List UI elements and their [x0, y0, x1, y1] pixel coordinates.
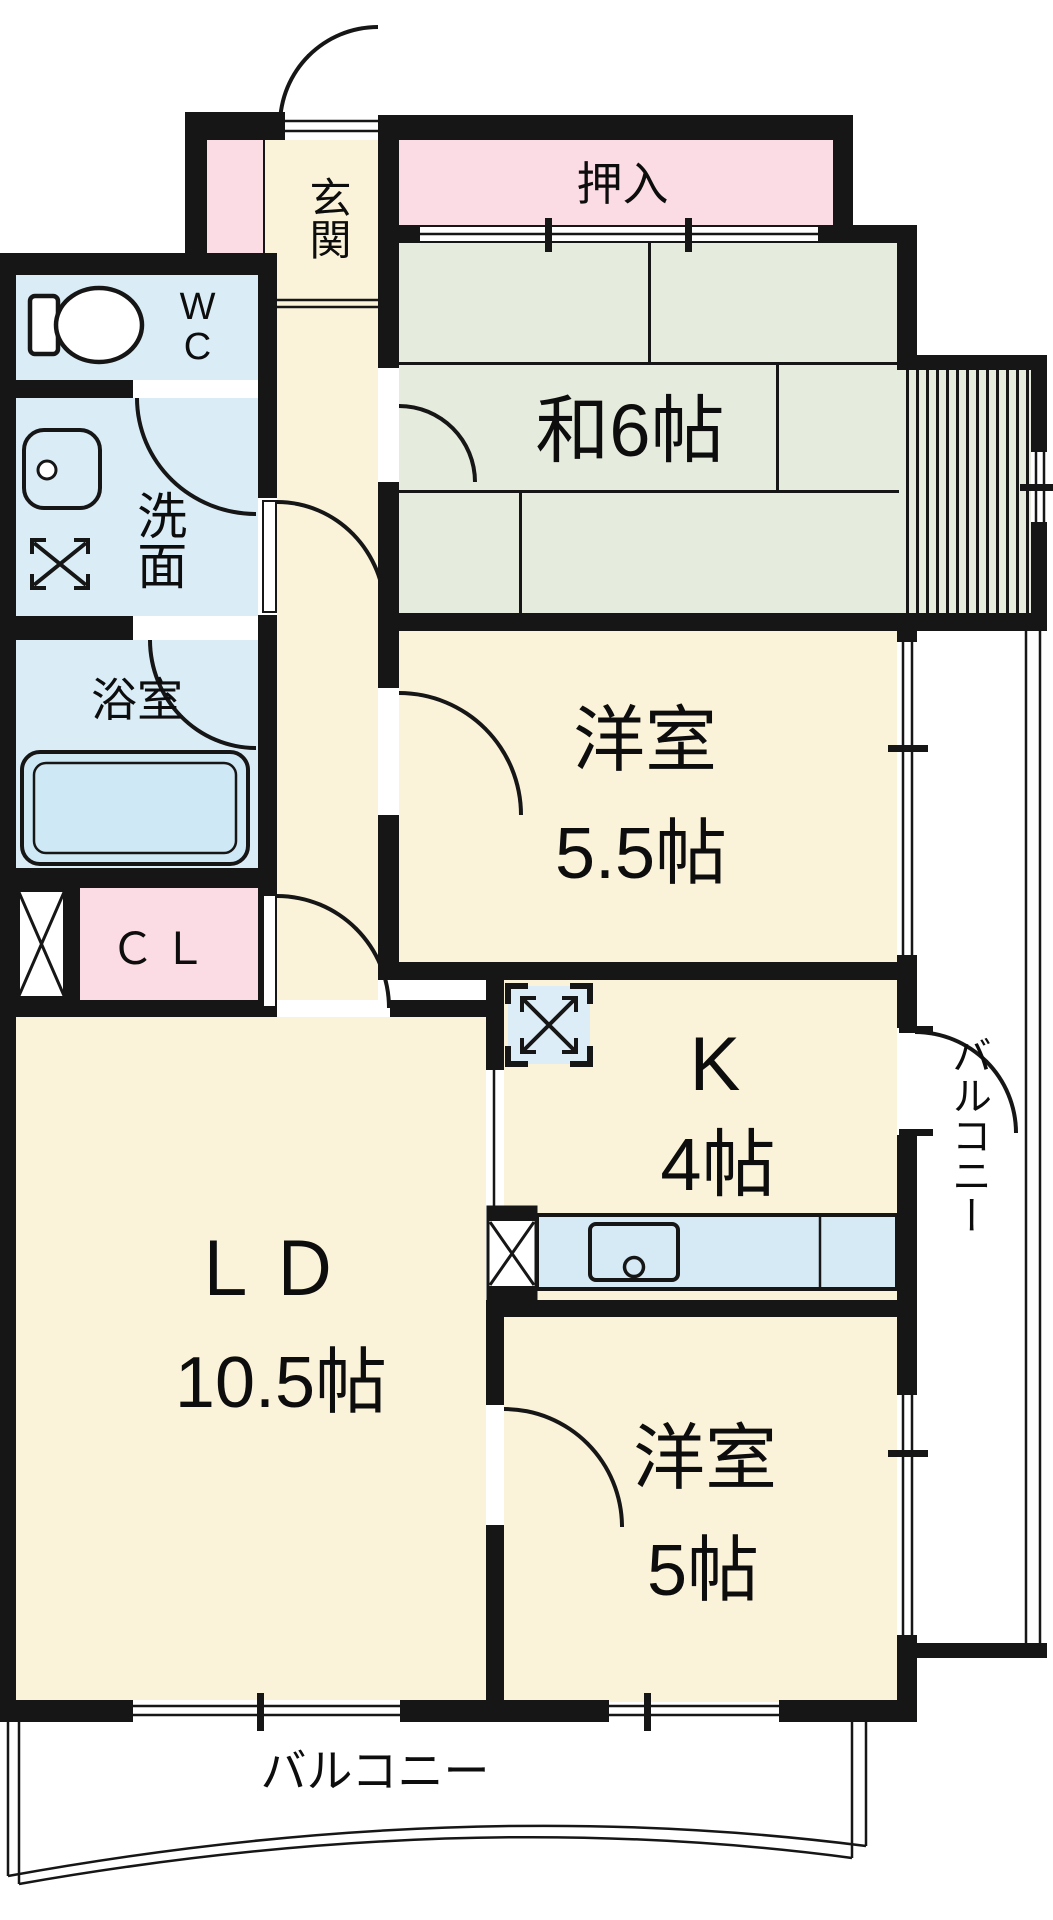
floorplan: 玄関 押入 和6帖 W C 洗面 浴室 ＣＬ 洋室 5.5帖 K 4帖 ＬＤ 1…	[0, 0, 1053, 1920]
wall	[1031, 370, 1047, 452]
wall	[897, 243, 917, 370]
wall	[378, 815, 399, 962]
wall	[378, 962, 917, 980]
wall	[1031, 522, 1047, 613]
label-washitsu: 和6帖	[430, 385, 830, 477]
wall	[897, 631, 917, 642]
tatami-line	[648, 243, 651, 365]
wall	[779, 1700, 917, 1722]
door-gap-western55	[378, 688, 399, 815]
label-yokushitsu: 浴室	[57, 672, 217, 728]
wall	[185, 112, 207, 253]
window-ld-south	[133, 1702, 400, 1720]
window-western5-east	[899, 1395, 915, 1635]
label-living-name: ＬＤ	[150, 1230, 385, 1310]
label-western55-name: 洋室	[480, 700, 810, 784]
label-genkan: 玄関	[298, 158, 356, 278]
door-leaf	[262, 500, 277, 613]
wall	[0, 1000, 277, 1017]
wall	[378, 613, 1047, 631]
label-wc: W C	[160, 278, 235, 378]
label-closet: ＣＬ	[85, 922, 240, 978]
label-balcony-bottom: バルコニー	[215, 1740, 535, 1802]
wall	[0, 616, 133, 640]
window-western5-south	[609, 1702, 779, 1720]
hatch-stripes	[899, 370, 1031, 613]
label-western5-name: 洋室	[570, 1418, 840, 1502]
fusuma-opening	[420, 227, 818, 241]
tatami-line	[519, 490, 522, 613]
wall	[486, 1525, 504, 1722]
balcony-door-kitchen	[899, 1028, 915, 1135]
label-wc-line1: W	[180, 288, 216, 328]
label-western55-size: 5.5帖	[470, 813, 812, 897]
label-senmen: 洗面	[126, 460, 190, 620]
label-balcony-right: バルコニー	[940, 975, 996, 1295]
dead-space	[399, 980, 486, 1000]
wall	[0, 868, 258, 888]
label-oshiire: 押入	[540, 152, 705, 216]
label-wc-line2: C	[184, 328, 211, 368]
window-tick	[1020, 484, 1053, 491]
wall	[0, 253, 16, 1722]
wall	[486, 1300, 917, 1317]
fusuma-tick	[685, 218, 692, 252]
window-tick	[644, 1693, 651, 1731]
entry-door-arc	[278, 25, 378, 125]
wall	[0, 380, 133, 398]
label-kitchen-size: 4帖	[620, 1122, 816, 1208]
wall	[67, 888, 80, 1000]
wall	[378, 140, 399, 368]
wall	[378, 115, 853, 140]
shoe-cabinet	[207, 140, 263, 253]
sliding-door-kitchen	[486, 1070, 504, 1207]
door-gap-wc	[133, 380, 256, 398]
wall	[258, 253, 277, 498]
door-gap-washitsu	[378, 368, 399, 482]
door-leaf	[262, 894, 277, 1008]
label-kitchen-name: K	[660, 1022, 770, 1108]
wall	[0, 253, 263, 275]
wall	[897, 955, 917, 1028]
wall	[400, 1700, 609, 1722]
wall	[486, 1317, 504, 1405]
window-western55-east	[899, 642, 915, 955]
divider	[263, 140, 265, 253]
wall	[897, 1135, 917, 1395]
door-gap-western5	[486, 1405, 504, 1525]
window-tick	[888, 745, 928, 752]
wall	[486, 980, 504, 1070]
fusuma-tick	[545, 218, 552, 252]
window-tick	[257, 1693, 264, 1731]
pipe-space-icon	[18, 890, 65, 998]
wall	[897, 355, 1047, 370]
tatami-line	[399, 490, 899, 493]
label-western5-size: 5帖	[565, 1530, 841, 1614]
wall	[0, 1700, 133, 1722]
balcony-end-wall	[903, 1643, 1047, 1658]
window-tick	[888, 1450, 928, 1457]
wall	[833, 115, 853, 243]
label-living-size: 10.5帖	[120, 1344, 442, 1424]
